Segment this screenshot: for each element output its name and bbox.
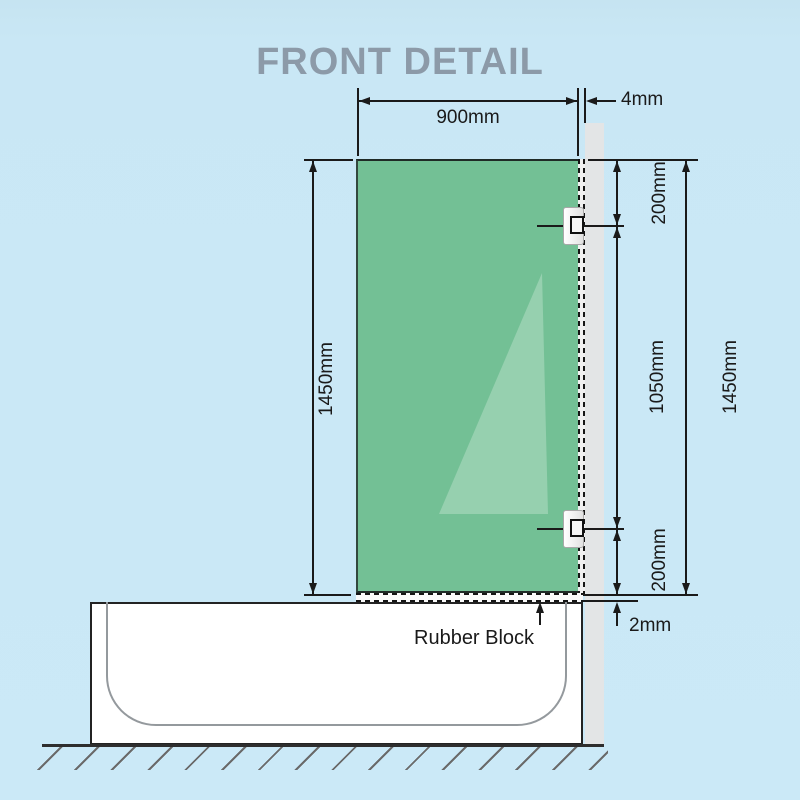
dim-label-200mm-top: 200mm xyxy=(649,161,671,224)
wall-post xyxy=(585,123,604,745)
extension-line xyxy=(583,600,638,602)
dim-tail-4mm xyxy=(597,100,616,102)
arrowhead-down xyxy=(613,214,621,225)
arrowhead-down xyxy=(682,583,690,594)
dim-label-1050mm: 1050mm xyxy=(647,340,669,414)
arrowhead-down xyxy=(613,517,621,528)
arrowhead-up xyxy=(682,161,690,172)
arrowhead-down xyxy=(309,583,317,594)
glass-bracket-bottom-clamp xyxy=(570,519,584,537)
arrowhead-up xyxy=(613,227,621,238)
page-title: FRONT DETAIL xyxy=(0,41,800,84)
dim-tail-2mm xyxy=(616,612,618,626)
arrowhead-right xyxy=(566,97,577,105)
arrowhead-down xyxy=(613,583,621,594)
rubber-dashes-top xyxy=(356,593,583,595)
extension-line xyxy=(577,88,579,156)
dim-label-1450mm-right: 1450mm xyxy=(720,340,742,414)
dim-label-2mm: 2mm xyxy=(629,616,671,637)
arrowhead-left xyxy=(586,97,597,105)
bathtub-inner-profile xyxy=(106,602,567,726)
extension-line xyxy=(584,88,586,123)
extension-line xyxy=(304,594,351,596)
callout-leader-line xyxy=(539,612,541,625)
front-detail-diagram: FRONT DETAIL 900mm 4mm 1450mm xyxy=(0,0,800,800)
dim-label-4mm: 4mm xyxy=(621,90,663,111)
rubber-block-strip xyxy=(356,593,583,602)
dim-label-1450mm-left: 1450mm xyxy=(316,342,338,416)
arrowhead-up xyxy=(613,161,621,172)
bathtub xyxy=(90,602,583,745)
dim-line-900 xyxy=(358,100,578,102)
dim-line-1450-right xyxy=(685,161,687,594)
arrowhead-up xyxy=(613,530,621,541)
arrowhead-left xyxy=(359,97,370,105)
dim-line-1450-left xyxy=(312,161,314,594)
dim-label-900mm: 900mm xyxy=(398,108,538,129)
dim-label-200mm-bottom: 200mm xyxy=(649,528,671,591)
arrowhead-up xyxy=(309,161,317,172)
extension-line xyxy=(583,594,698,596)
glass-bracket-top-clamp xyxy=(570,216,584,234)
rubber-block-label: Rubber Block xyxy=(414,627,534,649)
ground-hatching xyxy=(26,747,608,770)
